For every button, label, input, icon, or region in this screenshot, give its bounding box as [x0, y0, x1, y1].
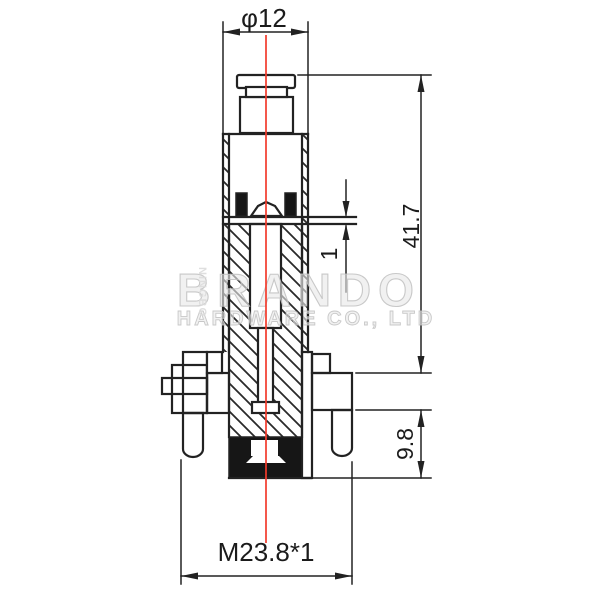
dim-label-height: 41.7: [398, 204, 424, 249]
dim-label-gap: 1: [316, 248, 342, 261]
watermark: BRANDO HARDWARE CO., LTD NINGBO: [177, 264, 435, 330]
air-gap-plates: [223, 217, 356, 224]
arrow-right: [291, 29, 308, 36]
dim-label-lower: 9.8: [392, 428, 418, 460]
watermark-side-text: NINGBO: [196, 267, 208, 317]
technical-drawing-page: φ12 41.7 1 9.8 M23.8*1 BRANDO H: [0, 0, 600, 600]
thread-skirt-right: [332, 410, 352, 456]
watermark-subtitle: HARDWARE CO., LTD: [177, 308, 435, 330]
seal-orifice: [251, 440, 278, 456]
seal-left: [236, 193, 247, 216]
solenoid-armature-drawing: φ12 41.7 1 9.8 M23.8*1 BRANDO H: [0, 0, 600, 600]
dim-label-diameter: φ12: [241, 3, 287, 33]
thread-skirt-left: [183, 413, 203, 457]
seal-right: [285, 193, 296, 216]
dimension-lower-height: 9.8: [313, 410, 431, 478]
bottom-seal: [229, 437, 311, 478]
arrow-left: [223, 29, 240, 36]
flange-slot-left: [207, 352, 222, 373]
